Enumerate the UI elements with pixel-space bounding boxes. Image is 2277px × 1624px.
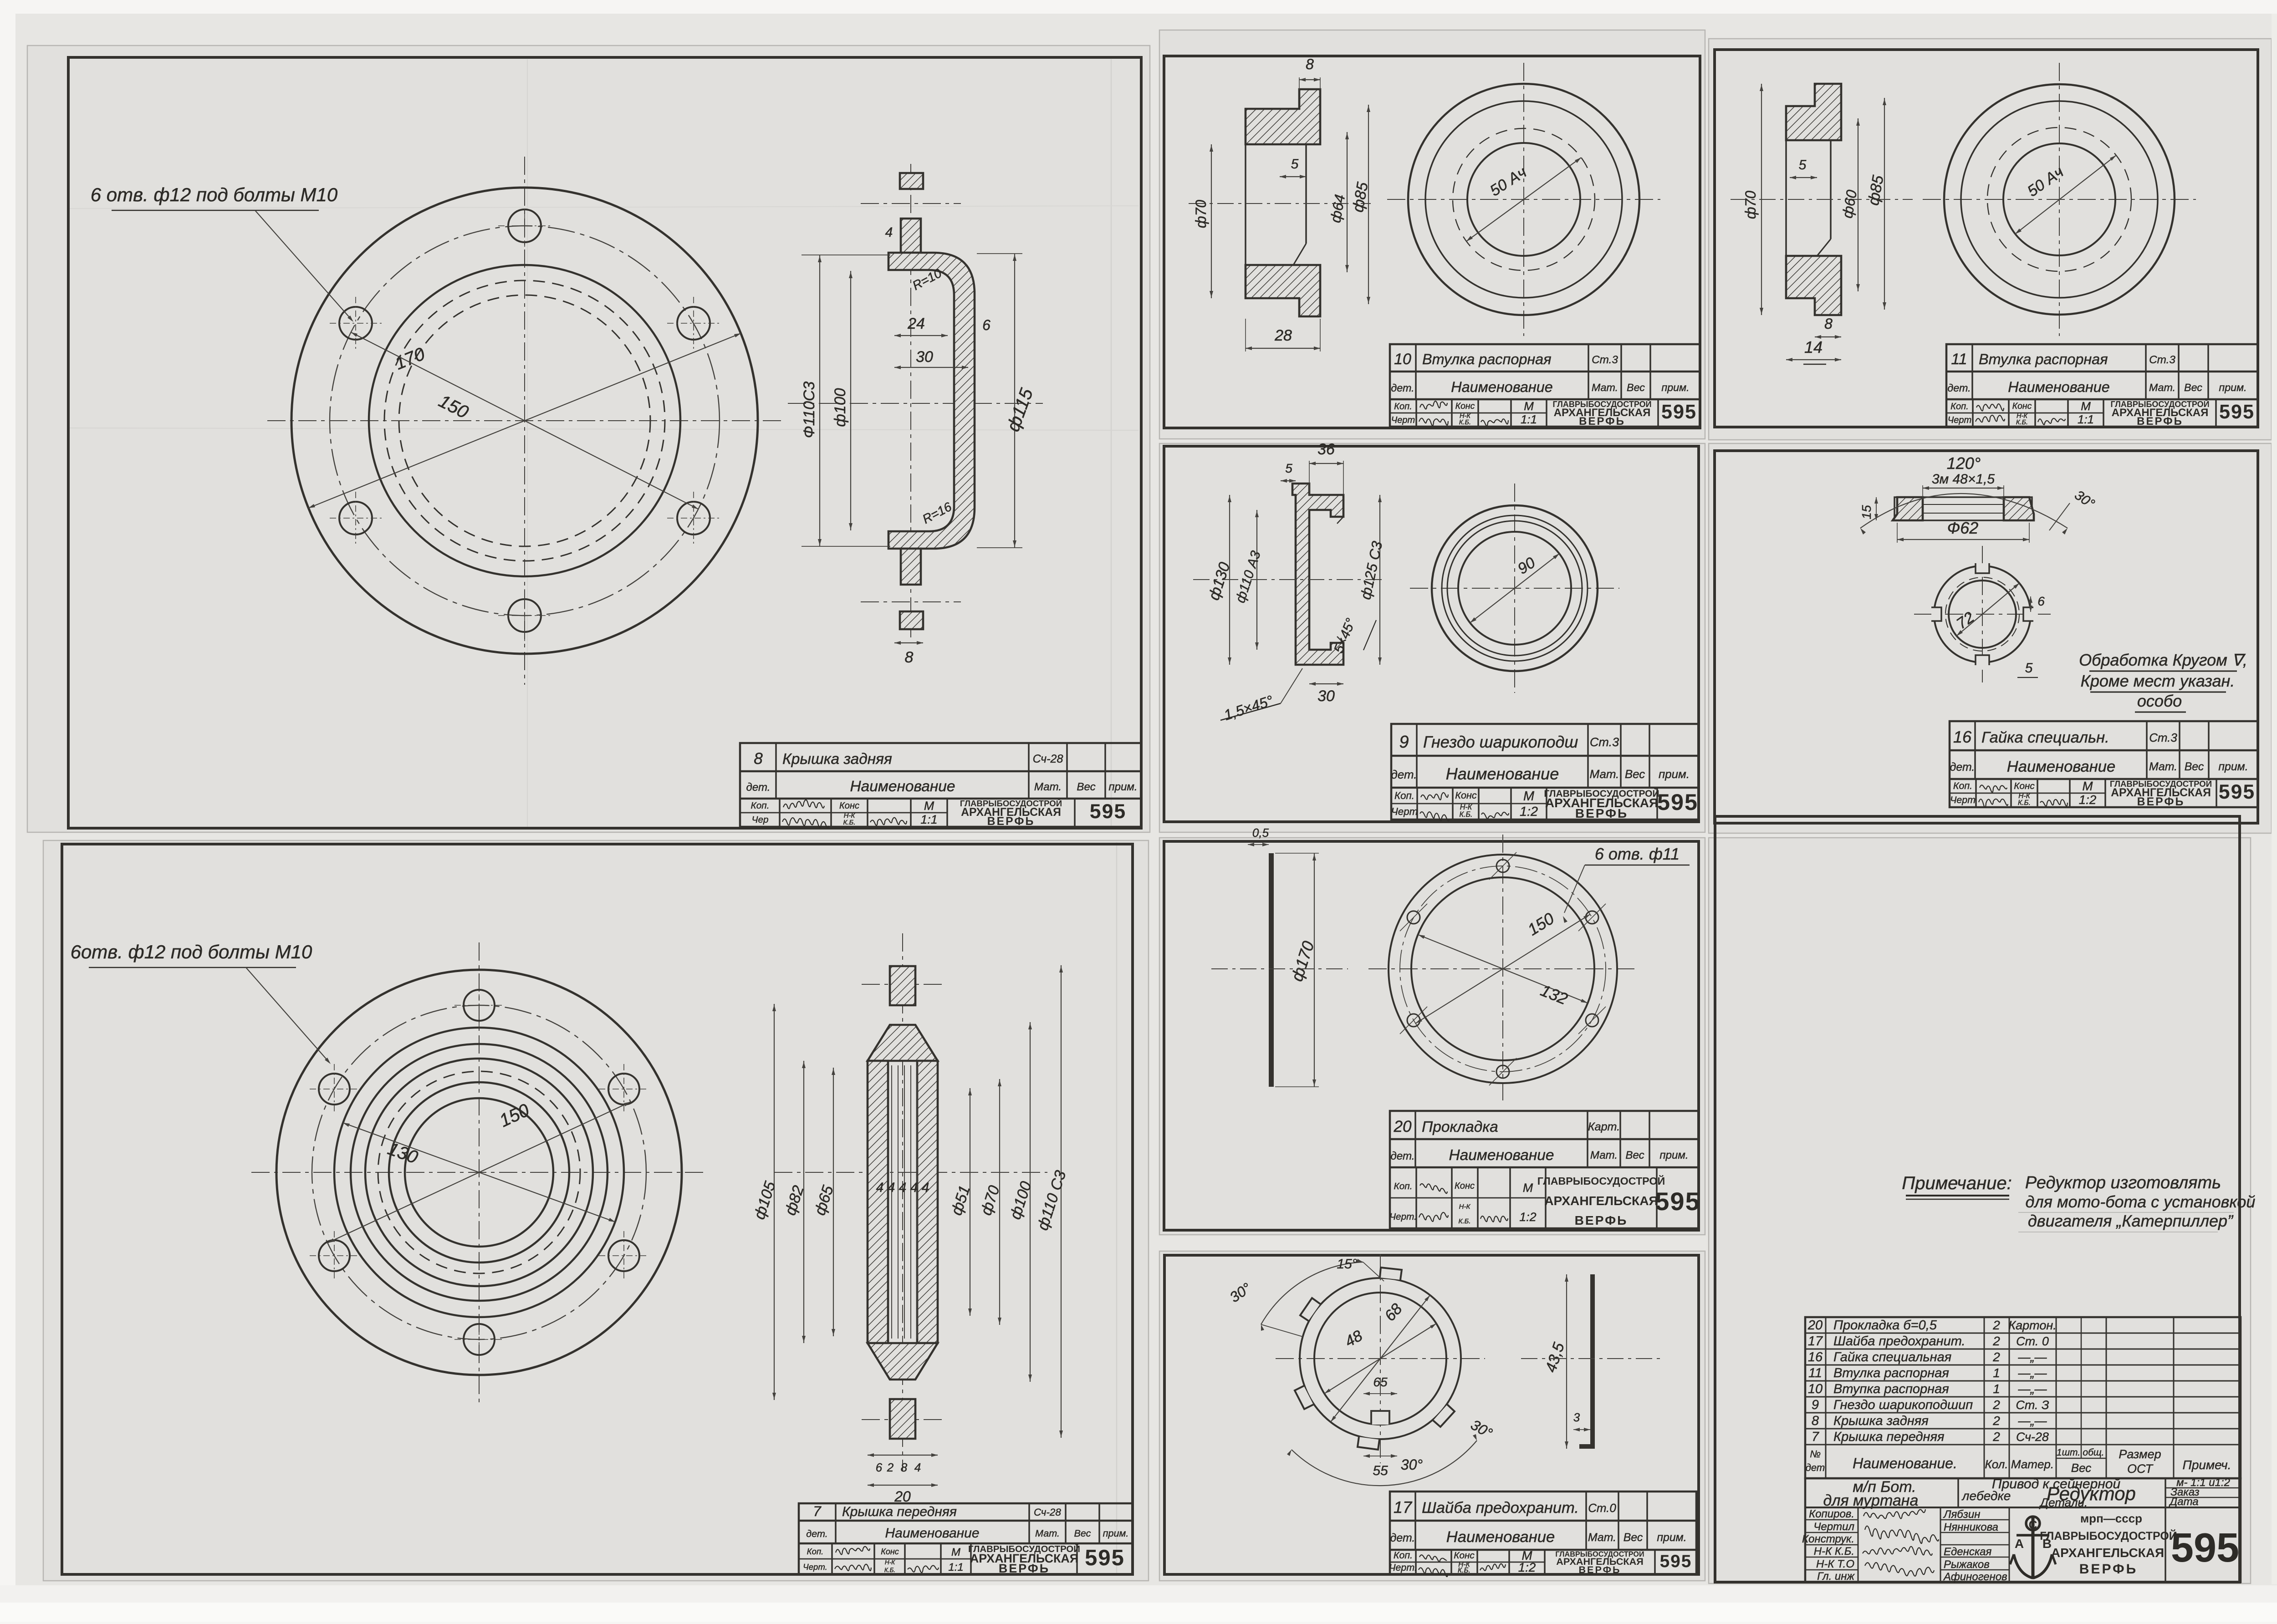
svg-text:Втупка распорная: Втупка распорная [1833, 1382, 1949, 1396]
svg-text:Наименование: Наименование [1449, 1147, 1554, 1164]
svg-text:Наименование: Наименование [850, 778, 955, 795]
svg-text:Наименование.: Наименование. [1853, 1455, 1957, 1471]
svg-text:прим.: прим. [1108, 781, 1137, 793]
svg-text:А: А [2015, 1537, 2024, 1551]
svg-text:20: 20 [894, 1488, 911, 1505]
svg-text:Сч-28: Сч-28 [2016, 1430, 2049, 1444]
svg-text:6 отв. ф11: 6 отв. ф11 [1595, 845, 1680, 863]
svg-text:К.Б.: К.Б. [2016, 419, 2028, 426]
svg-text:Втулка распорная: Втулка распорная [1833, 1366, 1949, 1380]
svg-text:Дата: Дата [2168, 1496, 2198, 1508]
svg-text:Редуктор изготовлять: Редуктор изготовлять [2025, 1173, 2221, 1192]
svg-text:2: 2 [1992, 1318, 2000, 1332]
svg-text:Черт: Черт [1948, 415, 1972, 425]
svg-text:Кроме мест указан.: Кроме мест указан. [2081, 672, 2235, 690]
svg-text:Конс: Конс [1454, 1550, 1475, 1561]
svg-text:30: 30 [1317, 687, 1335, 705]
svg-text:К.Б.: К.Б. [1458, 1217, 1470, 1225]
svg-text:для мото-бота с установкой: для мото-бота с установкой [2026, 1192, 2256, 1211]
svg-text:Конс: Конс [2014, 781, 2035, 791]
svg-text:Вес: Вес [1077, 781, 1095, 793]
svg-text:5: 5 [1799, 158, 1807, 173]
svg-text:—„—: —„— [2018, 1382, 2047, 1396]
svg-text:Чертил: Чертил [1813, 1521, 1854, 1533]
svg-text:Ст.0: Ст.0 [1588, 1502, 1616, 1515]
svg-text:14: 14 [1804, 338, 1823, 356]
svg-text:Конс: Конс [1455, 401, 1475, 411]
svg-text:17: 17 [1394, 1498, 1413, 1517]
svg-text:общ.: общ. [2083, 1447, 2104, 1458]
svg-text:1:1: 1:1 [2078, 413, 2094, 426]
svg-text:Ст. З: Ст. З [2016, 1398, 2049, 1412]
svg-text:дет.: дет. [1390, 1532, 1415, 1544]
svg-text:дет.: дет. [1950, 761, 1975, 774]
svg-text:Конструк.: Конструк. [1802, 1533, 1854, 1545]
svg-text:Гнездо шарикоподшип: Гнездо шарикоподшип [1833, 1398, 1973, 1412]
svg-text:11: 11 [1951, 351, 1967, 368]
svg-text:Гайка специальная: Гайка специальная [1833, 1350, 1951, 1364]
svg-text:Карт.: Карт. [1588, 1120, 1620, 1133]
svg-text:ф70: ф70 [1193, 200, 1209, 229]
svg-text:Мат.: Мат. [1588, 1531, 1616, 1544]
svg-text:Коп.: Коп. [807, 1547, 824, 1556]
svg-text:М: М [1523, 1181, 1533, 1195]
svg-text:Детали.: Детали. [2039, 1496, 2088, 1509]
svg-text:Вес: Вес [1627, 382, 1645, 393]
svg-text:—„—: —„— [2018, 1366, 2047, 1380]
svg-text:Наименование: Наименование [1446, 1528, 1555, 1546]
svg-text:С: С [2029, 1518, 2037, 1532]
svg-text:дет.: дет. [1391, 769, 1417, 781]
svg-text:30°: 30° [1401, 1456, 1423, 1473]
svg-text:8: 8 [1306, 56, 1314, 72]
svg-text:Гайка специальн.: Гайка специальн. [1981, 729, 2109, 746]
svg-text:Втулка распорная: Втулка распорная [1422, 351, 1552, 367]
svg-text:двигателя „Катерпиллер”: двигателя „Катерпиллер” [2028, 1212, 2234, 1230]
svg-text:Прокладка: Прокладка [1422, 1119, 1498, 1135]
svg-text:Коп.: Коп. [1950, 402, 1969, 412]
svg-text:Наименование: Наименование [1451, 379, 1553, 395]
svg-text:ф70: ф70 [1742, 191, 1759, 219]
svg-text:Конс: Конс [1455, 789, 1477, 801]
svg-text:ВЕРФЬ: ВЕРФЬ [1575, 1213, 1628, 1227]
svg-text:Шайба предохранит.: Шайба предохранит. [1422, 1499, 1579, 1517]
svg-text:28: 28 [1274, 327, 1292, 344]
svg-text:Н-К: Н-К [885, 1559, 895, 1566]
svg-text:ГЛАВРЫБОСУДОСТРОЙ: ГЛАВРЫБОСУДОСТРОЙ [2040, 1529, 2177, 1543]
svg-text:1:2: 1:2 [1518, 1560, 1536, 1574]
svg-text:Вес: Вес [1624, 1531, 1643, 1544]
svg-text:Ст.3: Ст.3 [1590, 735, 1619, 749]
svg-text:3м 48×1,5: 3м 48×1,5 [1932, 472, 1995, 487]
svg-text:К.Б.: К.Б. [1458, 1567, 1470, 1574]
svg-text:15: 15 [1859, 505, 1874, 519]
svg-text:Н-К Т.О: Н-К Т.О [1816, 1558, 1854, 1570]
svg-text:ВЕРФЬ: ВЕРФЬ [2079, 1562, 2138, 1577]
svg-text:4 4 4 4 4: 4 4 4 4 4 [876, 1180, 929, 1195]
svg-text:дет.: дет. [1947, 382, 1971, 394]
svg-text:Вес: Вес [2185, 760, 2204, 773]
svg-text:Ст.3: Ст.3 [2149, 354, 2175, 366]
svg-text:Копиров.: Копиров. [1809, 1508, 1854, 1520]
svg-text:3: 3 [1573, 1410, 1580, 1424]
svg-text:Н-К: Н-К [1459, 1203, 1471, 1211]
svg-text:Черт.: Черт. [1389, 1212, 1417, 1222]
svg-text:6: 6 [982, 317, 990, 333]
svg-text:М: М [2082, 779, 2093, 793]
svg-text:прим.: прим. [1659, 768, 1690, 781]
svg-text:Примеч.: Примеч. [2183, 1458, 2231, 1472]
svg-text:1:2: 1:2 [2079, 793, 2096, 807]
svg-text:5: 5 [1285, 461, 1292, 475]
svg-text:прим.: прим. [2219, 382, 2246, 393]
svg-text:595: 595 [1085, 1546, 1125, 1570]
svg-text:11: 11 [1808, 1366, 1822, 1380]
svg-text:—„—: —„— [2018, 1350, 2047, 1364]
svg-text:4: 4 [885, 225, 893, 240]
svg-text:2: 2 [1992, 1430, 2000, 1444]
svg-text:595: 595 [1655, 1187, 1700, 1216]
svg-text:ф100: ф100 [832, 388, 849, 427]
svg-text:10: 10 [1808, 1382, 1823, 1396]
svg-text:дет.: дет. [1391, 382, 1414, 394]
svg-text:М: М [924, 799, 934, 813]
svg-text:Черт.: Черт. [803, 1562, 827, 1572]
svg-text:6: 6 [2037, 594, 2045, 608]
svg-text:8: 8 [905, 649, 914, 666]
svg-text:Мат.: Мат. [1590, 768, 1619, 781]
svg-text:М: М [1523, 789, 1534, 804]
svg-text:Гл. инж: Гл. инж [1817, 1570, 1855, 1583]
svg-text:ГЛАВРЫБОСУДОСТРОЙ: ГЛАВРЫБОСУДОСТРОЙ [1537, 1175, 1665, 1187]
svg-text:2: 2 [1992, 1350, 2000, 1364]
svg-text:6: 6 [876, 1461, 883, 1474]
svg-text:прим.: прим. [1657, 1531, 1686, 1544]
svg-text:7: 7 [1812, 1430, 1820, 1444]
svg-text:К.Б.: К.Б. [1459, 419, 1471, 426]
svg-text:особо: особо [2137, 692, 2182, 710]
svg-text:АРХАНГЕЛЬСКАЯ: АРХАНГЕЛЬСКАЯ [2051, 1546, 2164, 1560]
svg-text:1:2: 1:2 [1520, 804, 1538, 819]
svg-text:0,5: 0,5 [1252, 826, 1269, 840]
svg-text:16: 16 [1953, 728, 1972, 746]
svg-text:прим.: прим. [1103, 1527, 1129, 1539]
svg-text:2: 2 [1992, 1414, 2000, 1428]
svg-text:5: 5 [1291, 157, 1299, 172]
svg-text:2: 2 [887, 1461, 894, 1474]
svg-text:1: 1 [1993, 1366, 2000, 1380]
svg-text:24: 24 [907, 315, 925, 332]
svg-text:Н-К К.Б.: Н-К К.Б. [1814, 1545, 1854, 1558]
svg-text:6отв. ф12 под болты М10: 6отв. ф12 под болты М10 [71, 941, 312, 962]
svg-text:120°: 120° [1947, 454, 1981, 473]
svg-text:2: 2 [1992, 1334, 2000, 1348]
svg-text:55: 55 [1373, 1463, 1388, 1478]
svg-text:ВЕРФЬ: ВЕРФЬ [999, 1562, 1050, 1575]
svg-text:дет.: дет. [746, 781, 771, 794]
svg-text:Рыжаков: Рыжаков [1944, 1558, 1990, 1571]
svg-text:1:1: 1:1 [1521, 413, 1537, 426]
svg-text:36: 36 [1317, 441, 1335, 458]
svg-text:Мат.: Мат. [1034, 781, 1062, 793]
svg-text:М: М [2081, 400, 2091, 413]
svg-text:Сч-28: Сч-28 [1033, 753, 1063, 765]
svg-text:8: 8 [1824, 316, 1833, 332]
svg-text:Втулка распорная: Втулка распорная [1979, 351, 2108, 367]
svg-text:Афиногенов: Афиногенов [1943, 1571, 2007, 1583]
svg-text:Сч-28: Сч-28 [1034, 1507, 1061, 1518]
svg-text:6 отв. ф12 под болты М10: 6 отв. ф12 под болты М10 [91, 184, 338, 205]
svg-text:прим.: прим. [2218, 760, 2248, 773]
svg-text:1:1: 1:1 [948, 1561, 963, 1573]
svg-text:Черт: Черт [1391, 415, 1415, 425]
svg-text:АРХАНГЕЛЬСКАЯ: АРХАНГЕЛЬСКАЯ [1544, 1194, 1658, 1208]
svg-text:Черт: Черт [1950, 794, 1976, 805]
svg-text:№: № [1810, 1448, 1821, 1460]
svg-text:20: 20 [1807, 1318, 1823, 1333]
svg-text:дет.: дет. [806, 1528, 827, 1539]
svg-text:Вес: Вес [1625, 768, 1645, 781]
svg-text:Черт.: Черт. [1389, 1562, 1417, 1573]
svg-text:ВЕРФЬ: ВЕРФЬ [987, 815, 1035, 828]
svg-text:Размер: Размер [2119, 1447, 2161, 1461]
svg-text:ВЕРФЬ: ВЕРФЬ [2137, 415, 2183, 428]
svg-text:ВЕРФЬ: ВЕРФЬ [2137, 796, 2185, 808]
svg-text:2: 2 [1992, 1398, 2000, 1412]
svg-text:Картон.: Картон. [2008, 1319, 2057, 1332]
svg-text:Вес: Вес [2071, 1461, 2092, 1475]
svg-text:1:1: 1:1 [920, 813, 937, 826]
svg-text:9: 9 [1812, 1398, 1819, 1412]
svg-text:М: М [951, 1546, 960, 1558]
svg-text:17: 17 [1808, 1334, 1823, 1349]
svg-text:Вес: Вес [1625, 1149, 1644, 1161]
svg-text:Конс: Конс [1455, 1181, 1475, 1191]
svg-text:Обработка Кругом ∇,: Обработка Кругом ∇, [2079, 651, 2247, 669]
svg-text:Мат.: Мат. [1035, 1527, 1060, 1539]
svg-text:Крышка задняя: Крышка задняя [1833, 1414, 1929, 1428]
svg-text:Коп.: Коп. [751, 800, 770, 811]
svg-text:К.Б.: К.Б. [1459, 810, 1472, 819]
svg-text:Гнездо шарикоподш: Гнездо шарикоподш [1423, 733, 1578, 751]
svg-text:—„—: —„— [2018, 1414, 2047, 1428]
svg-text:Наименование: Наименование [2007, 758, 2115, 775]
svg-text:Чер: Чер [751, 815, 768, 825]
svg-text:мрп—ссср: мрп—ссср [2080, 1512, 2142, 1525]
svg-text:Ф110С3: Ф110С3 [801, 382, 818, 438]
svg-text:10: 10 [1394, 351, 1411, 368]
svg-text:Наименование: Наименование [885, 1526, 979, 1541]
svg-text:Вес: Вес [1074, 1527, 1091, 1539]
svg-text:Коп.: Коп. [1394, 790, 1414, 801]
svg-text:ОСТ: ОСТ [2127, 1462, 2154, 1476]
svg-text:Мат.: Мат. [2149, 760, 2177, 773]
svg-text:К.Б.: К.Б. [2018, 799, 2031, 807]
svg-text:Лябзин: Лябзин [1943, 1508, 1980, 1521]
svg-text:Мат.: Мат. [1592, 382, 1618, 393]
svg-text:595: 595 [2171, 1525, 2239, 1571]
svg-text:Нянникова: Нянникова [1944, 1521, 1998, 1533]
svg-text:595: 595 [1657, 789, 1698, 815]
svg-text:20: 20 [1393, 1118, 1412, 1135]
svg-text:Матер.: Матер. [2011, 1457, 2054, 1471]
svg-text:1:2: 1:2 [1519, 1210, 1536, 1224]
svg-text:дет: дет [1806, 1462, 1825, 1473]
svg-text:595: 595 [2219, 401, 2255, 423]
svg-text:Коп.: Коп. [1394, 1550, 1413, 1561]
svg-text:Ст.3: Ст.3 [1592, 354, 1618, 366]
svg-text:для муртана: для муртана [1823, 1492, 1919, 1509]
svg-text:8: 8 [1812, 1414, 1819, 1428]
svg-text:8: 8 [901, 1461, 908, 1474]
svg-text:1шт.: 1шт. [2057, 1447, 2080, 1458]
svg-text:Ст.3: Ст.3 [2149, 732, 2177, 744]
svg-text:Конс: Конс [881, 1547, 899, 1556]
svg-text:595: 595 [1660, 1552, 1692, 1571]
svg-text:Крышка задняя: Крышка задняя [782, 751, 892, 768]
svg-text:16: 16 [1808, 1350, 1823, 1364]
svg-text:Примечание:: Примечание: [1902, 1173, 2012, 1193]
svg-text:прим.: прим. [1661, 382, 1689, 393]
svg-text:Коп.: Коп. [1394, 402, 1412, 412]
svg-text:595: 595 [1090, 800, 1126, 823]
svg-text:К.Б.: К.Б. [843, 819, 855, 826]
svg-text:Прокладка б=0,5: Прокладка б=0,5 [1833, 1318, 1937, 1333]
svg-text:Ст. 0: Ст. 0 [2016, 1334, 2049, 1348]
svg-text:65: 65 [1373, 1375, 1388, 1389]
svg-text:1: 1 [1993, 1382, 2000, 1396]
svg-text:8: 8 [754, 750, 763, 768]
svg-text:Мат.: Мат. [2149, 382, 2175, 393]
svg-text:595: 595 [2219, 781, 2255, 803]
svg-text:дет.: дет. [1391, 1150, 1415, 1162]
svg-text:Наименование: Наименование [1446, 764, 1559, 783]
svg-text:4: 4 [914, 1461, 921, 1474]
svg-text:15°: 15° [1337, 1257, 1357, 1272]
svg-text:прим.: прим. [1659, 1149, 1688, 1161]
svg-text:Наименование: Наименование [2008, 379, 2110, 395]
svg-text:Ф62: Ф62 [1947, 519, 1979, 537]
svg-text:30: 30 [916, 348, 933, 366]
svg-text:Коп.: Коп. [1953, 780, 1972, 791]
svg-text:Конс: Конс [2012, 401, 2032, 411]
svg-text:ВЕРФЬ: ВЕРФЬ [1579, 415, 1625, 428]
svg-text:Шайба предохранит.: Шайба предохранит. [1833, 1334, 1966, 1349]
svg-text:5: 5 [2025, 661, 2033, 676]
svg-text:Конс: Конс [839, 801, 859, 811]
svg-text:Черт: Черт [1391, 806, 1418, 817]
svg-text:К.Б.: К.Б. [884, 1567, 895, 1573]
svg-text:М: М [1524, 400, 1534, 413]
svg-text:Коп.: Коп. [1394, 1181, 1413, 1191]
svg-text:ВЕРФЬ: ВЕРФЬ [1578, 1564, 1621, 1575]
svg-text:595: 595 [1661, 401, 1697, 423]
svg-text:Еденская: Еденская [1944, 1546, 1992, 1558]
svg-text:9: 9 [1399, 733, 1409, 752]
svg-text:Вес: Вес [2184, 382, 2202, 393]
svg-text:Крышка передняя: Крышка передняя [1833, 1430, 1945, 1444]
svg-text:Кол.: Кол. [1985, 1457, 2008, 1471]
svg-text:ВЕРФЬ: ВЕРФЬ [1575, 806, 1628, 820]
svg-text:Крышка передняя: Крышка передняя [842, 1504, 957, 1519]
svg-text:Мат.: Мат. [1590, 1149, 1618, 1161]
svg-text:лебедке: лебедке [1961, 1489, 2011, 1503]
svg-text:7: 7 [813, 1503, 822, 1519]
